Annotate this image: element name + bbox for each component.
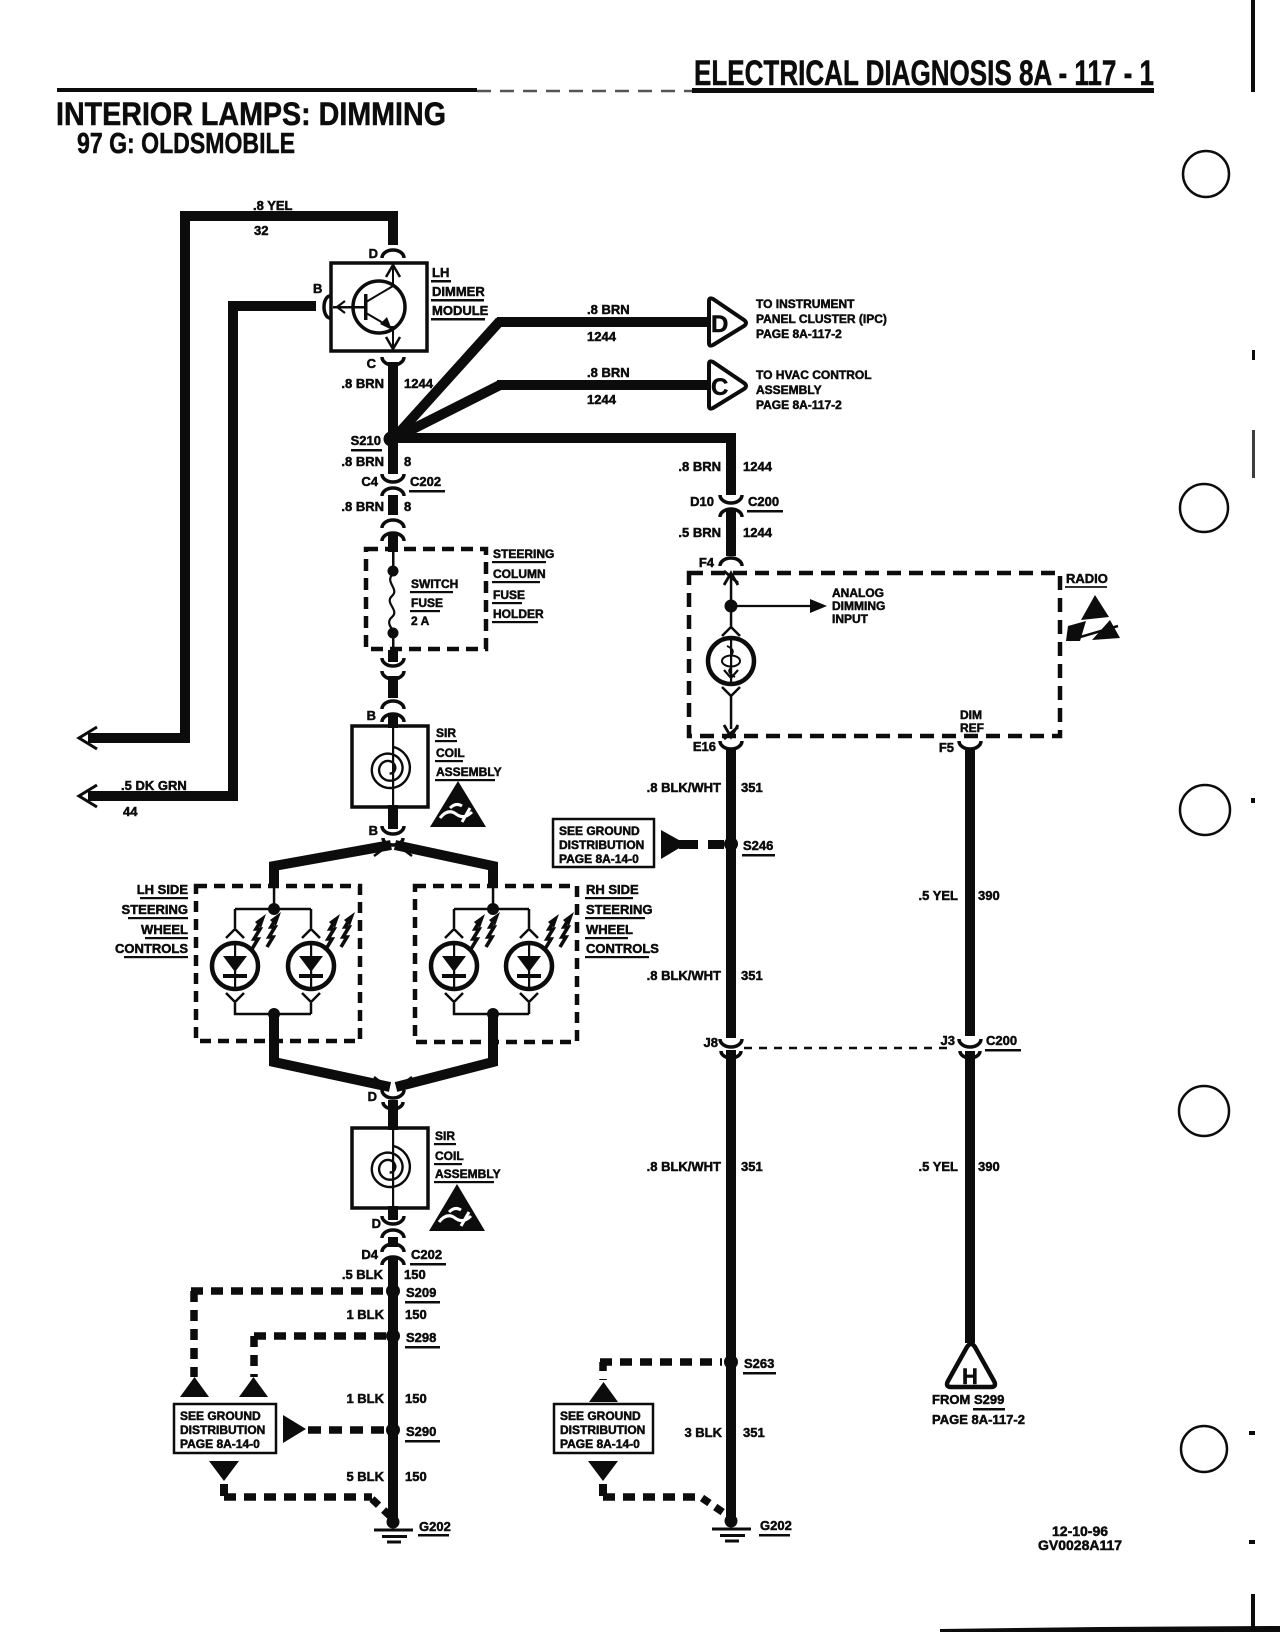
svg-text:ASSEMBLY: ASSEMBLY [436,765,502,779]
svg-text:97 G: OLDSMOBILE: 97 G: OLDSMOBILE [77,128,295,160]
svg-text:WHEEL: WHEEL [586,922,633,937]
svg-text:ASSEMBLY: ASSEMBLY [756,383,822,397]
svg-text:390: 390 [978,888,1000,903]
svg-text:F5: F5 [939,740,954,755]
svg-text:.5 BLK: .5 BLK [342,1267,384,1282]
svg-text:S210: S210 [351,433,381,448]
svg-text:CONTROLS: CONTROLS [586,941,659,956]
svg-text:PAGE 8A-117-2: PAGE 8A-117-2 [756,327,842,341]
svg-text:.8 BRN: .8 BRN [341,376,384,391]
svg-text:D4: D4 [361,1247,378,1262]
svg-text:COIL: COIL [436,746,465,760]
svg-text:1 BLK: 1 BLK [346,1307,384,1322]
svg-text:ANALOG: ANALOG [832,586,884,600]
svg-text:1244: 1244 [404,376,434,391]
svg-text:MODULE: MODULE [432,303,489,318]
svg-text:REF: REF [960,721,984,735]
svg-text:F4: F4 [699,555,715,570]
svg-text:5 BLK: 5 BLK [346,1469,384,1484]
svg-text:TO INSTRUMENT: TO INSTRUMENT [756,297,855,311]
svg-text:S298: S298 [406,1330,436,1345]
svg-text:LH SIDE: LH SIDE [137,882,189,897]
svg-text:J8: J8 [704,1035,718,1050]
svg-text:.5 DK GRN: .5 DK GRN [121,778,187,793]
svg-text:SIR: SIR [436,726,456,740]
svg-text:S246: S246 [743,838,773,853]
svg-text:B: B [369,823,378,838]
svg-text:STEERING: STEERING [122,902,188,917]
svg-text:351: 351 [743,1425,765,1440]
svg-text:RADIO: RADIO [1066,571,1108,586]
svg-text:.8 BRN: .8 BRN [678,459,721,474]
svg-text:LH: LH [432,265,449,280]
svg-text:SIR: SIR [435,1129,455,1143]
svg-text:G202: G202 [760,1518,792,1533]
svg-text:INTERIOR LAMPS: DIMMING: INTERIOR LAMPS: DIMMING [56,96,446,132]
svg-text:351: 351 [741,968,763,983]
svg-text:PANEL CLUSTER (IPC): PANEL CLUSTER (IPC) [756,312,887,326]
svg-text:C: C [367,356,377,371]
svg-text:S290: S290 [406,1424,436,1439]
svg-text:D: D [372,1216,381,1231]
svg-text:32: 32 [254,223,268,238]
svg-text:C202: C202 [410,474,441,489]
svg-text:DISTRIBUTION: DISTRIBUTION [559,838,644,852]
svg-text:DISTRIBUTION: DISTRIBUTION [180,1423,265,1437]
svg-text:SEE GROUND: SEE GROUND [559,824,640,838]
svg-text:351: 351 [741,780,763,795]
svg-text:INPUT: INPUT [832,612,869,626]
svg-text:HOLDER: HOLDER [493,607,544,621]
svg-text:150: 150 [405,1391,427,1406]
svg-text:.5 YEL: .5 YEL [918,888,958,903]
svg-text:DIMMER: DIMMER [432,284,485,299]
svg-text:.8 BRN: .8 BRN [587,302,630,317]
svg-text:3 BLK: 3 BLK [684,1425,722,1440]
svg-text:FROM: FROM [932,1392,970,1407]
svg-text:B: B [367,708,376,723]
svg-text:S209: S209 [406,1285,436,1300]
svg-text:150: 150 [404,1267,426,1282]
svg-text:.8 BRN: .8 BRN [587,365,630,380]
svg-text:ASSEMBLY: ASSEMBLY [435,1167,501,1181]
svg-text:SEE GROUND: SEE GROUND [180,1409,261,1423]
svg-text:.5 BRN: .5 BRN [678,525,721,540]
svg-text:351: 351 [741,1159,763,1174]
svg-text:.8 YEL: .8 YEL [253,198,293,213]
svg-text:PAGE 8A-14-0: PAGE 8A-14-0 [180,1437,260,1451]
svg-text:DISTRIBUTION: DISTRIBUTION [560,1423,645,1437]
svg-text:1244: 1244 [743,459,773,474]
svg-text:D: D [369,246,378,261]
svg-text:1 BLK: 1 BLK [346,1391,384,1406]
svg-text:.8 BLK/WHT: .8 BLK/WHT [647,780,721,795]
svg-text:ELECTRICAL DIAGNOSIS 8A - 117: ELECTRICAL DIAGNOSIS 8A - 117 - 1 [694,54,1154,93]
svg-text:.8 BRN: .8 BRN [341,454,384,469]
svg-text:SWITCH: SWITCH [411,577,458,591]
svg-text:SEE GROUND: SEE GROUND [560,1409,641,1423]
svg-text:DIMMING: DIMMING [832,599,885,613]
svg-text:8: 8 [404,454,411,469]
svg-text:150: 150 [405,1307,427,1322]
svg-text:COIL: COIL [435,1149,464,1163]
svg-text:C4: C4 [361,474,378,489]
svg-text:390: 390 [978,1159,1000,1174]
svg-text:.5 YEL: .5 YEL [918,1159,958,1174]
svg-text:C202: C202 [411,1247,442,1262]
svg-text:C200: C200 [748,494,779,509]
svg-text:1244: 1244 [743,525,773,540]
svg-text:H: H [962,1364,978,1389]
svg-text:2 A: 2 A [411,614,430,628]
svg-text:S299: S299 [974,1392,1004,1407]
svg-text:44: 44 [123,804,138,819]
svg-text:FUSE: FUSE [411,596,443,610]
svg-text:STEERING: STEERING [586,902,652,917]
svg-text:G202: G202 [419,1519,451,1534]
svg-text:E16: E16 [693,739,716,754]
svg-text:DIM: DIM [960,708,982,722]
svg-text:.8 BLK/WHT: .8 BLK/WHT [647,1159,721,1174]
svg-text:C: C [711,374,728,401]
svg-text:STEERING: STEERING [493,547,554,561]
svg-text:.8 BLK/WHT: .8 BLK/WHT [647,968,721,983]
svg-text:1244: 1244 [587,392,617,407]
svg-text:B: B [313,281,322,296]
svg-text:8: 8 [404,499,411,514]
svg-text:PAGE 8A-117-2: PAGE 8A-117-2 [932,1412,1025,1427]
svg-text:GV0028A117: GV0028A117 [1038,1537,1122,1553]
svg-text:TO HVAC CONTROL: TO HVAC CONTROL [756,368,872,382]
svg-text:D10: D10 [690,494,714,509]
svg-text:D: D [711,311,728,338]
svg-text:CONTROLS: CONTROLS [115,941,188,956]
svg-text:C200: C200 [986,1033,1017,1048]
svg-text:WHEEL: WHEEL [141,922,188,937]
svg-text:PAGE 8A-14-0: PAGE 8A-14-0 [559,852,639,866]
svg-text:150: 150 [405,1469,427,1484]
svg-text:1244: 1244 [587,329,617,344]
svg-text:J3: J3 [941,1033,955,1048]
svg-text:S263: S263 [744,1356,774,1371]
svg-text:D: D [368,1089,377,1104]
svg-text:COLUMN: COLUMN [493,567,546,581]
svg-text:FUSE: FUSE [493,588,525,602]
svg-text:.8 BRN: .8 BRN [341,499,384,514]
svg-text:PAGE 8A-14-0: PAGE 8A-14-0 [560,1437,640,1451]
svg-text:RH SIDE: RH SIDE [586,882,639,897]
svg-text:PAGE 8A-117-2: PAGE 8A-117-2 [756,398,842,412]
